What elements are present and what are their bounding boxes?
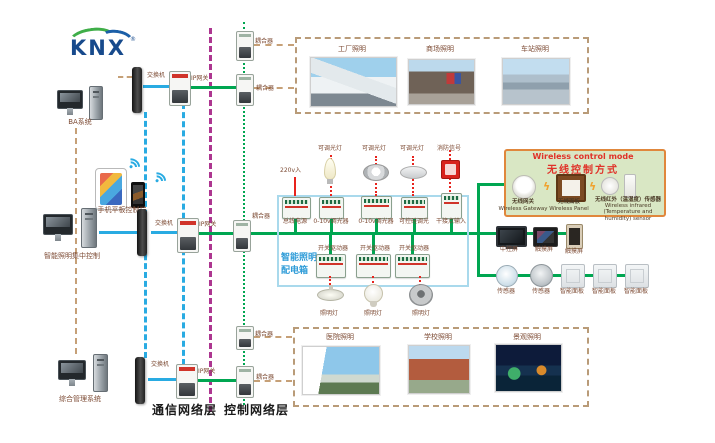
wireless-panel-icon (556, 174, 586, 202)
module-label: 0-10v调光器 (358, 219, 393, 226)
ethernet-switch (135, 357, 145, 404)
coupler-label: 耦合器 (256, 375, 274, 382)
bulb-icon (364, 284, 383, 303)
module-label: 可控硅调光 (399, 219, 429, 226)
panel-title-line2: 配电箱 (281, 263, 308, 276)
red-mains-line (294, 177, 296, 196)
green-link (189, 86, 241, 89)
mobile-control-devices (95, 158, 165, 210)
panel-light-icon (400, 166, 427, 179)
green-link (194, 379, 240, 382)
ip-gateway (176, 364, 198, 399)
dimmer-module (319, 197, 344, 219)
switch-actuator-module (356, 254, 391, 278)
central-screen-icon (496, 226, 527, 247)
scene-label: 工厂照明 (338, 46, 366, 54)
wireless-gateway-label-zh: 无线网关 (512, 199, 534, 205)
switch-driver-label: 开关驱动器 (360, 246, 390, 253)
green-branch-vertical (477, 183, 480, 277)
knx-logo: KNX ® (68, 28, 138, 64)
ip-gateway (177, 218, 199, 253)
scene-label: 车站照明 (521, 46, 549, 54)
wireless-link-icon: ϟ (589, 181, 596, 192)
wireless-panel-label-en: Wireless Panel (549, 206, 589, 212)
sensor-icon (496, 265, 518, 287)
switch-driver-label: 开关驱动器 (399, 246, 429, 253)
coupler-label: 耦合器 (255, 332, 273, 339)
line-coupler (236, 74, 254, 106)
desktop-computer-icon (43, 214, 73, 235)
switch-actuator-module (316, 254, 346, 278)
dry-contact-input-module (441, 193, 462, 219)
wireless-link-icon: ϟ (543, 181, 550, 192)
green-link (479, 274, 496, 277)
coupler-label: 耦合器 (252, 214, 270, 221)
desktop-computer-icon (57, 90, 83, 109)
switch-actuator-module (395, 254, 430, 278)
scene-label: 商场照明 (426, 46, 454, 54)
tablet-icon (95, 168, 127, 210)
ba-system-label: BA系统 (68, 119, 92, 127)
central-screen-label: 中控屏 (500, 247, 518, 254)
computer-tower-icon (81, 208, 97, 248)
station-lighting-photo (502, 58, 570, 105)
dimmer-module (361, 196, 392, 219)
touch-screen-icon (566, 224, 583, 249)
switch-driver-label: 开关驱动器 (318, 246, 348, 253)
phone-icon (131, 182, 145, 208)
smart-panel-icon (593, 264, 617, 288)
knx-lighting-topology-diagram: 工厂照明 商场照明 车站照明 医院照明 学校照明 景观照明 KNX ® BA系统… (0, 0, 715, 443)
module-label: 总线电源 (283, 219, 307, 226)
green-link-wireless (479, 183, 506, 186)
mains-label: 220v入 (280, 168, 301, 175)
management-system-computer (58, 354, 108, 394)
lamp-label: 照明灯 (364, 311, 382, 318)
sensor-label: 传感器 (532, 289, 550, 296)
ethernet-switch (132, 67, 142, 113)
touch-screen-label: 触摸屏 (535, 247, 553, 254)
downlight-icon (363, 164, 389, 181)
dimmable-lamp-label: 可调光灯 (318, 146, 342, 153)
fire-alarm-icon (441, 160, 460, 179)
ba-system-computer (57, 86, 103, 122)
factory-lighting-photo (310, 57, 397, 107)
touch-screen-label: 触摸屏 (565, 249, 583, 256)
registered-mark: ® (130, 36, 136, 43)
candle-bulb-icon (324, 158, 336, 180)
smart-panel-label: 智能面板 (592, 289, 616, 296)
blue-link (99, 231, 139, 234)
landscape-lighting-photo (495, 344, 562, 392)
ip-gateway-label: IP网关 (199, 222, 216, 229)
wifi-icon (146, 169, 169, 192)
school-lighting-photo (408, 345, 470, 394)
smart-panel-label: 智能面板 (624, 289, 648, 296)
smart-panel-label: 智能面板 (560, 289, 584, 296)
switch-label: 交换机 (147, 73, 165, 80)
desktop-computer-icon (58, 360, 86, 380)
blue-link (151, 231, 179, 234)
scene-label: 学校照明 (424, 334, 452, 342)
line-coupler (236, 31, 254, 61)
temperature-humidity-sensor-icon (624, 174, 636, 198)
dimmable-lamp-label: 可调光灯 (400, 146, 424, 153)
smart-panel-icon (625, 264, 649, 288)
control-layer-label: 控制网络层 (224, 401, 289, 418)
central-control-computer (43, 208, 97, 250)
wireless-sensor-label-en: Wireless infrared (Temperature and humid… (592, 203, 664, 222)
scene-label: 医院照明 (326, 334, 354, 342)
coupler-label: 耦合器 (256, 86, 274, 93)
ethernet-switch (137, 209, 147, 256)
switch-label: 交换机 (151, 362, 169, 369)
triac-dimmer-module (401, 197, 428, 219)
knx-logo-text: KNX (70, 38, 126, 59)
lamp-label: 照明灯 (412, 311, 430, 318)
computer-tower-icon (93, 354, 108, 392)
ip-gateway (169, 71, 191, 106)
touch-screen-icon (533, 227, 558, 247)
management-system-label: 综合管理系统 (59, 396, 101, 404)
tan-dashed-stub (118, 76, 132, 78)
communication-layer-label: 通信网络层 (152, 401, 217, 418)
central-control-label: 智能照明集中控制 (44, 253, 100, 261)
fire-signal-label: 消防信号 (437, 146, 461, 153)
module-label: 0-10v调光器 (313, 219, 348, 226)
panel-title-line1: 智能照明 (281, 250, 317, 263)
hospital-lighting-photo (302, 346, 380, 395)
wireless-gateway-icon (512, 175, 536, 199)
switch-label: 交换机 (155, 221, 173, 228)
smart-panel-icon (561, 264, 585, 288)
lamp-label: 照明灯 (320, 311, 338, 318)
ip-gateway-label: IP网关 (191, 76, 208, 83)
scene-label: 景观照明 (513, 334, 541, 342)
blue-link (143, 85, 171, 88)
wireless-title-en: Wireless control mode (532, 152, 633, 161)
ceiling-lamp-icon (317, 289, 344, 301)
ip-gateway-label: IP网关 (198, 369, 215, 376)
line-coupler (236, 326, 254, 350)
blue-link (148, 378, 178, 381)
line-coupler (233, 220, 251, 252)
bus-power-module (282, 197, 311, 219)
wireless-panel-label-zh: 无线面板 (558, 199, 580, 205)
computer-tower-icon (89, 86, 103, 120)
sensor-icon (530, 264, 553, 287)
coupler-label: 耦合器 (255, 39, 273, 46)
sensor-label: 传感器 (497, 289, 515, 296)
mall-lighting-photo (408, 59, 475, 105)
line-coupler (236, 366, 254, 398)
wireless-gateway-label-en: Wireless Gateway (498, 206, 547, 212)
spotlight-icon (409, 284, 433, 306)
wireless-ir-sensor-icon (601, 177, 619, 195)
module-label: 干接点输入 (436, 219, 466, 226)
dimmable-lamp-label: 可调光灯 (362, 146, 386, 153)
